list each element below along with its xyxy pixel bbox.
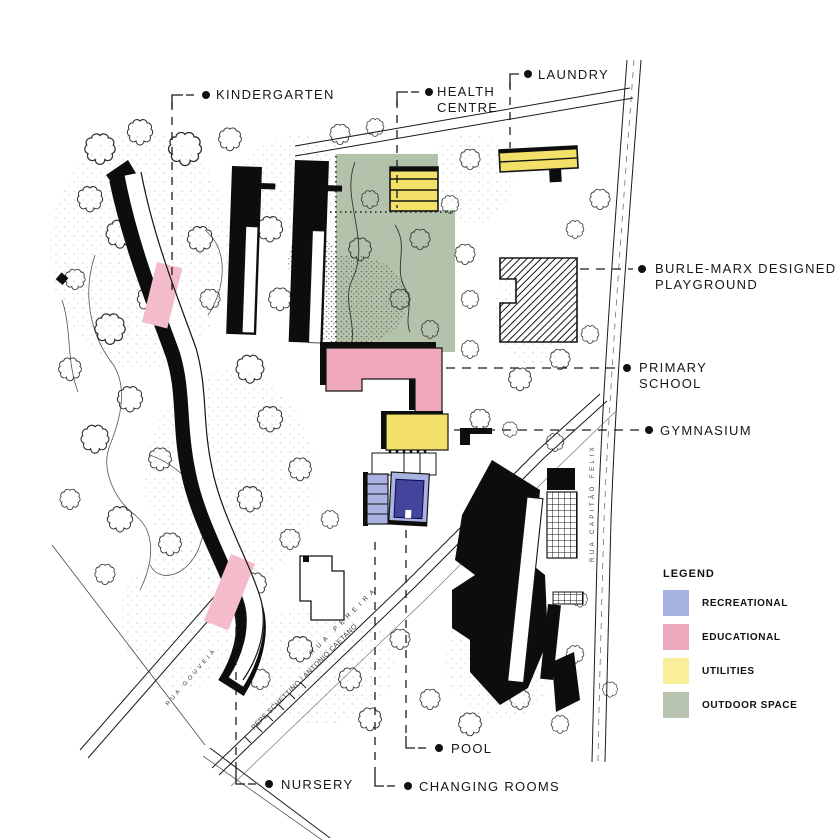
legend-swatch-utilities [663, 658, 689, 684]
changing-rooms-building [363, 472, 388, 526]
label-pool: POOL [451, 741, 492, 757]
bullet-icon [638, 265, 646, 273]
bullet-icon [524, 70, 532, 78]
legend-label: UTILITIES [702, 666, 755, 677]
site-plan: RUA PEREIRA PEPE SCHETTINO / ANTONIO CAE… [0, 0, 840, 840]
service-rooms-building [372, 453, 436, 475]
legend: LEGEND RECREATIONAL EDUCATIONAL UTILITIE… [663, 568, 813, 726]
bullet-icon [265, 780, 273, 788]
legend-swatch-outdoor-space [663, 692, 689, 718]
gymnasium-building [381, 411, 448, 457]
label-health-centre: HEALTH CENTRE [437, 84, 498, 116]
legend-item-educational: EDUCATIONAL [663, 624, 813, 650]
label-nursery: NURSERY [281, 777, 353, 793]
legend-label: OUTDOOR SPACE [702, 700, 797, 711]
primary-school-building [320, 342, 442, 416]
bullet-icon [425, 88, 433, 96]
bullet-icon [404, 782, 412, 790]
legend-item-utilities: UTILITIES [663, 658, 813, 684]
pool-building [389, 472, 430, 526]
label-primary-school: PRIMARY SCHOOL [639, 360, 707, 392]
legend-item-recreational: RECREATIONAL [663, 590, 813, 616]
legend-title: LEGEND [663, 568, 813, 580]
health-centre-building [390, 167, 438, 211]
legend-item-outdoor-space: OUTDOOR SPACE [663, 692, 813, 718]
street-name-rua-capitao-felix: RUA CAPITÃO FELIX [589, 444, 596, 562]
label-changing-rooms: CHANGING ROOMS [419, 779, 560, 795]
legend-swatch-educational [663, 624, 689, 650]
label-kindergarten: KINDERGARTEN [216, 87, 335, 103]
bullet-icon [435, 744, 443, 752]
label-laundry: LAUNDRY [538, 67, 609, 83]
bullet-icon [645, 426, 653, 434]
legend-label: EDUCATIONAL [702, 632, 781, 643]
label-burle-marx: BURLE-MARX DESIGNED PLAYGROUND [655, 261, 836, 293]
legend-label: RECREATIONAL [702, 598, 788, 609]
legend-swatch-recreational [663, 590, 689, 616]
label-gymnasium: GYMNASIUM [660, 423, 752, 439]
bullet-icon [202, 91, 210, 99]
bullet-icon [623, 364, 631, 372]
